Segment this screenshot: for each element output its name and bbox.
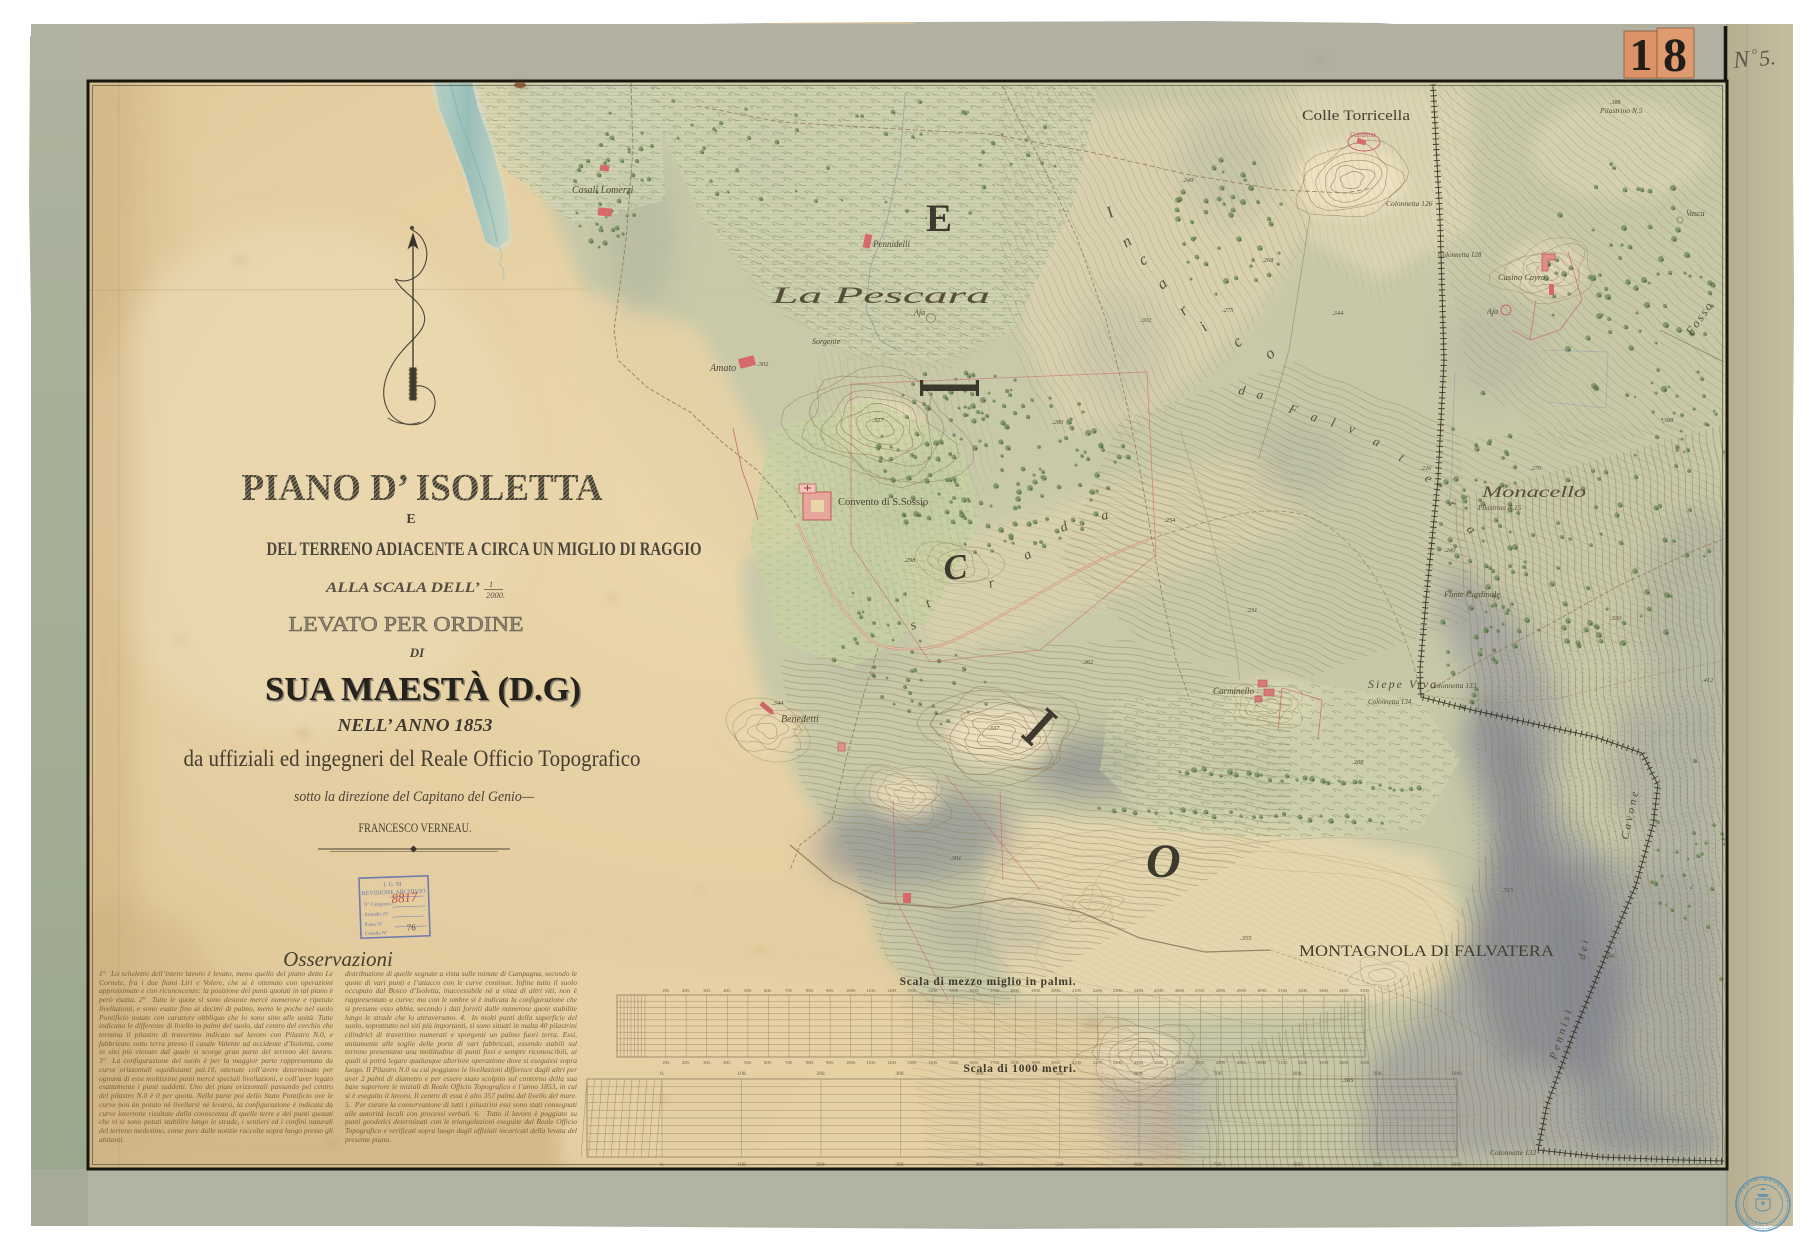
svg-text:1400.: 1400. — [928, 1060, 938, 1065]
svg-text:3300.: 3300. — [1319, 1060, 1329, 1065]
svg-text:Cartella N°: Cartella N° — [365, 931, 388, 937]
svg-text:300.: 300. — [895, 1162, 905, 1168]
svg-text:1: 1 — [1630, 29, 1653, 80]
svg-text:400.: 400. — [975, 1162, 985, 1168]
svg-text:3500.: 3500. — [1360, 988, 1370, 993]
svg-text:900.: 900. — [826, 1060, 834, 1065]
svg-text:3000.: 3000. — [1257, 1060, 1267, 1065]
svg-text:100.: 100. — [737, 1162, 747, 1168]
svg-text:1100.: 1100. — [866, 1060, 876, 1065]
svg-text:3200.: 3200. — [1298, 988, 1308, 993]
svg-text:3500.: 3500. — [1360, 1060, 1370, 1065]
svg-text:1500.: 1500. — [949, 1060, 959, 1065]
svg-text:900.: 900. — [826, 988, 834, 993]
svg-text:NELL’ ANNO 1853: NELL’ ANNO 1853 — [336, 715, 492, 735]
svg-text:2000.: 2000. — [1051, 988, 1061, 993]
svg-text:200.: 200. — [816, 1071, 826, 1077]
svg-text:3100.: 3100. — [1278, 1060, 1288, 1065]
svg-text:500.: 500. — [1055, 1071, 1065, 1077]
svg-text:DI: DI — [409, 645, 425, 660]
svg-text:1000.: 1000. — [846, 988, 856, 993]
svg-text:700.: 700. — [785, 1060, 793, 1065]
svg-text:N° Categorico: N° Categorico — [364, 902, 393, 908]
svg-text:400.: 400. — [723, 1060, 731, 1065]
svg-text:2700.: 2700. — [1195, 1060, 1205, 1065]
svg-text:500.: 500. — [744, 1060, 752, 1065]
svg-text:3100.: 3100. — [1278, 988, 1288, 993]
svg-text:400.: 400. — [975, 1071, 985, 1077]
svg-text:3000.: 3000. — [1257, 988, 1267, 993]
svg-text:600.: 600. — [764, 988, 772, 993]
svg-text:Armadio N°: Armadio N° — [364, 912, 389, 918]
svg-text:3200.: 3200. — [1298, 1060, 1308, 1065]
svg-text:900.: 900. — [1373, 1071, 1383, 1077]
svg-text:o: o — [1752, 46, 1757, 57]
svg-text:3400.: 3400. — [1339, 988, 1349, 993]
svg-text:2400.: 2400. — [1134, 1060, 1144, 1065]
svg-text:ALLA SCALA DELL’: ALLA SCALA DELL’ — [325, 580, 480, 596]
svg-text:M: M — [1763, 1177, 1768, 1182]
svg-text:Scala di mezzo miglio in palmi: Scala di mezzo miglio in palmi. — [900, 976, 1077, 988]
svg-text:2500.: 2500. — [1154, 988, 1164, 993]
svg-text:500.: 500. — [1055, 1162, 1065, 1168]
svg-text:LEVATO PER ORDINE: LEVATO PER ORDINE — [289, 612, 524, 636]
svg-text:2100.: 2100. — [1072, 988, 1082, 993]
svg-text:2900.: 2900. — [1237, 1060, 1247, 1065]
svg-text:400.: 400. — [723, 988, 731, 993]
svg-text:2400.: 2400. — [1134, 988, 1144, 993]
svg-text:PIANO D’ ISOLETTA: PIANO D’ ISOLETTA — [242, 467, 604, 509]
svg-text:2600.: 2600. — [1175, 988, 1185, 993]
svg-text:FRANCESCO VERNEAU.: FRANCESCO VERNEAU. — [359, 821, 472, 835]
svg-text:700.: 700. — [785, 988, 793, 993]
svg-text:1800.: 1800. — [1010, 988, 1020, 993]
svg-text:1400.: 1400. — [928, 988, 938, 993]
svg-text:1300.: 1300. — [907, 1060, 917, 1065]
svg-text:800.: 800. — [806, 988, 814, 993]
svg-text:1200.: 1200. — [887, 1060, 897, 1065]
svg-text:2500.: 2500. — [1154, 1060, 1164, 1065]
svg-text:DEL TERRENO ADIACENTE A CIRCA: DEL TERRENO ADIACENTE A CIRCA UN MIGLIO … — [267, 539, 702, 560]
svg-text:900.: 900. — [1373, 1162, 1383, 1168]
svg-text:76: 76 — [407, 922, 417, 932]
svg-text:da uffiziali ed ingegneri del: da uffiziali ed ingegneri del Reale Offi… — [184, 746, 641, 771]
svg-text:100.: 100. — [662, 1060, 670, 1065]
svg-text:3400.: 3400. — [1339, 1060, 1349, 1065]
svg-text:2300.: 2300. — [1113, 988, 1123, 993]
svg-text:500.: 500. — [744, 988, 752, 993]
svg-text:1: 1 — [489, 579, 493, 589]
svg-text:2000.: 2000. — [486, 590, 505, 600]
svg-text:1000.: 1000. — [1451, 1162, 1464, 1168]
svg-text:2800.: 2800. — [1216, 1060, 1226, 1065]
svg-text:800.: 800. — [1293, 1071, 1303, 1077]
svg-text:600.: 600. — [1134, 1071, 1144, 1077]
svg-text:300.: 300. — [895, 1071, 905, 1077]
svg-text:2200.: 2200. — [1093, 1060, 1103, 1065]
svg-text:1200.: 1200. — [887, 988, 897, 993]
svg-text:2200.: 2200. — [1093, 988, 1103, 993]
svg-text:2600.: 2600. — [1175, 1060, 1185, 1065]
svg-text:sotto la direzione del Capitan: sotto la direzione del Capitano del Geni… — [294, 789, 535, 805]
svg-text:200.: 200. — [682, 1060, 690, 1065]
svg-text:200.: 200. — [682, 988, 690, 993]
svg-text:700.: 700. — [1213, 1162, 1223, 1168]
svg-text:I. G. M.: I. G. M. — [384, 882, 404, 889]
svg-text:L: L — [1762, 1223, 1765, 1228]
svg-text:E: E — [406, 512, 415, 527]
svg-text:1300.: 1300. — [907, 988, 917, 993]
svg-text:700.: 700. — [1213, 1071, 1223, 1077]
svg-text:200.: 200. — [816, 1162, 826, 1168]
svg-text:2800.: 2800. — [1216, 988, 1226, 993]
svg-text:1600.: 1600. — [969, 988, 979, 993]
svg-text:300.: 300. — [703, 1060, 711, 1065]
svg-text:Osservazioni: Osservazioni — [283, 947, 393, 971]
svg-text:100.: 100. — [737, 1071, 747, 1077]
svg-text:8: 8 — [1663, 29, 1687, 82]
svg-text:5.: 5. — [1758, 44, 1777, 71]
svg-text:3300.: 3300. — [1319, 988, 1329, 993]
svg-text:800.: 800. — [806, 1060, 814, 1065]
svg-text:SUA MAESTÀ (D.G): SUA MAESTÀ (D.G) — [265, 671, 581, 708]
svg-text:0.: 0. — [660, 1071, 665, 1077]
svg-text:2300.: 2300. — [1113, 1060, 1123, 1065]
svg-text:600.: 600. — [1134, 1162, 1144, 1168]
svg-text:8817: 8817 — [391, 889, 419, 906]
svg-text:1500.: 1500. — [949, 988, 959, 993]
svg-text:Piano N°: Piano N° — [365, 922, 383, 928]
svg-text:2700.: 2700. — [1195, 988, 1205, 993]
svg-text:800.: 800. — [1293, 1162, 1303, 1168]
svg-text:1000.: 1000. — [846, 1060, 856, 1065]
svg-text:1100.: 1100. — [866, 988, 876, 993]
svg-text:1000.: 1000. — [1451, 1071, 1464, 1077]
svg-text:2900.: 2900. — [1237, 988, 1247, 993]
svg-text:1700.: 1700. — [990, 988, 1000, 993]
svg-text:600.: 600. — [764, 1060, 772, 1065]
svg-text:1900.: 1900. — [1031, 988, 1041, 993]
svg-text:0.: 0. — [660, 1162, 665, 1168]
svg-text:300.: 300. — [703, 988, 711, 993]
svg-text:100.: 100. — [662, 988, 670, 993]
